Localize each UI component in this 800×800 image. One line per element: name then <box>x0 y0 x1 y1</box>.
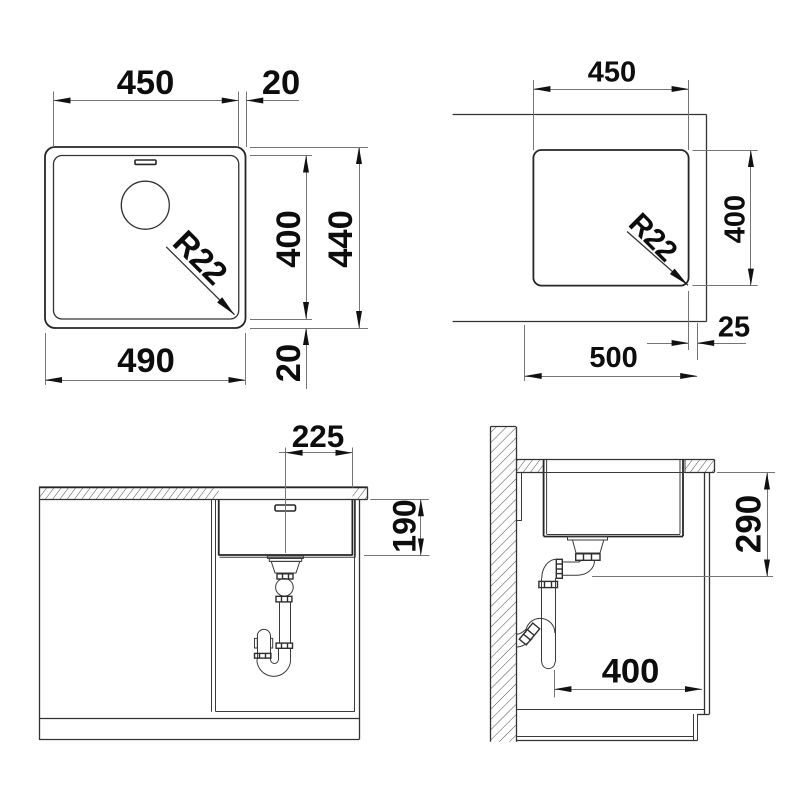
svg-text:20: 20 <box>262 64 300 102</box>
svg-text:25: 25 <box>718 312 750 344</box>
svg-text:20: 20 <box>270 344 308 382</box>
svg-text:400: 400 <box>602 653 660 691</box>
svg-text:400: 400 <box>270 210 308 268</box>
svg-text:225: 225 <box>292 418 345 454</box>
svg-text:500: 500 <box>589 342 637 374</box>
svg-text:450: 450 <box>117 64 175 102</box>
svg-text:190: 190 <box>387 499 423 552</box>
svg-text:400: 400 <box>720 195 752 243</box>
svg-text:440: 440 <box>322 210 360 268</box>
svg-text:450: 450 <box>588 57 636 89</box>
svg-text:490: 490 <box>117 342 175 380</box>
svg-text:290: 290 <box>730 495 769 553</box>
